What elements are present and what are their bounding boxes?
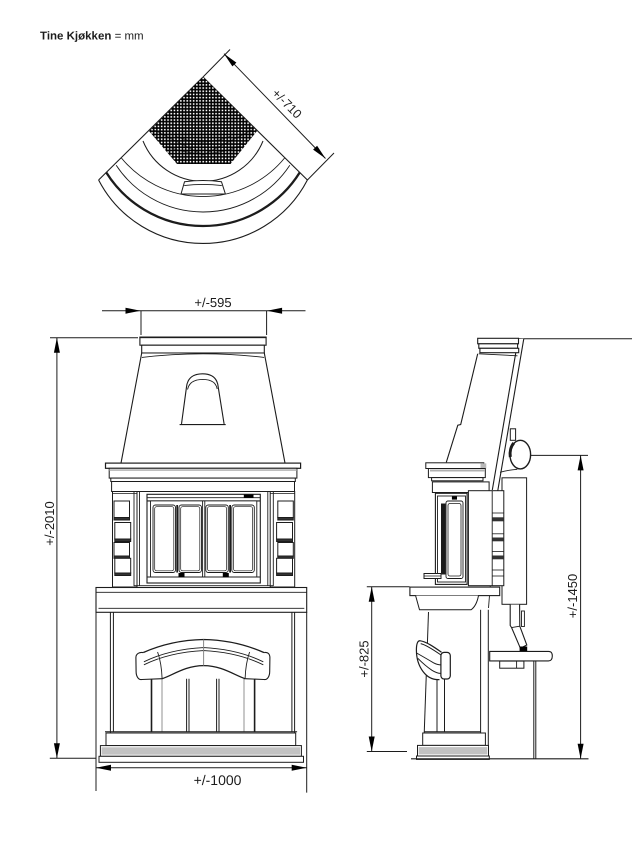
svg-text:+/-1450: +/-1450 xyxy=(565,574,580,618)
svg-text:+/-595: +/-595 xyxy=(194,295,231,310)
svg-text:Tine Kjøkken = mm: Tine Kjøkken = mm xyxy=(40,31,144,43)
svg-text:+/-710: +/-710 xyxy=(269,86,304,121)
svg-text:+/-825: +/-825 xyxy=(357,640,372,677)
svg-text:+/-2010: +/-2010 xyxy=(42,501,57,545)
svg-text:+/-1000: +/-1000 xyxy=(194,772,242,788)
